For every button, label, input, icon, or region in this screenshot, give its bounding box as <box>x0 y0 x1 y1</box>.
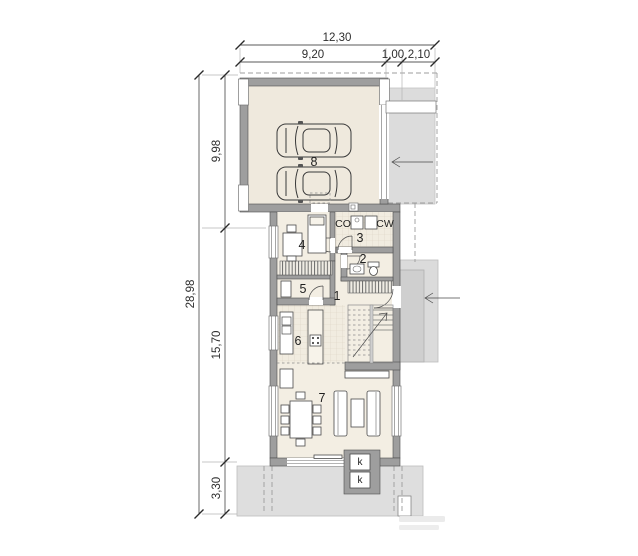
dim-top-total: 12,30 <box>323 32 352 44</box>
window <box>269 316 278 350</box>
dim-top-seg3: 2,10 <box>408 49 430 61</box>
entrance-arrow <box>425 293 460 303</box>
shelf <box>281 281 291 297</box>
room-label-3: 3 <box>357 231 364 245</box>
terrace <box>237 466 423 516</box>
room-label-5: 5 <box>300 282 307 296</box>
wardrobe <box>348 281 393 293</box>
entry-porch-inner <box>400 270 424 362</box>
garage-door <box>379 105 389 199</box>
chair <box>287 256 296 261</box>
room-label-6: 6 <box>295 334 302 348</box>
floor-plan-page: 8 <box>0 0 638 556</box>
co-label: CO <box>335 218 351 230</box>
room-label-7: 7 <box>319 391 326 405</box>
terrace-post <box>398 496 411 516</box>
garage-floor <box>244 82 384 208</box>
chair <box>281 405 289 413</box>
cooktop <box>310 335 321 346</box>
sliding-door <box>314 455 342 459</box>
chair <box>281 416 289 424</box>
garage-canopy <box>386 101 436 113</box>
wardrobe <box>280 261 332 275</box>
window <box>269 226 278 258</box>
fireplace: k k <box>344 450 380 494</box>
chair <box>313 416 321 424</box>
chair <box>313 427 321 435</box>
chair <box>313 405 321 413</box>
room-label-4: 4 <box>299 238 306 252</box>
dim-top-seg1: 9,20 <box>302 49 324 61</box>
room-label-1: 1 <box>334 289 341 303</box>
watermark <box>399 516 445 530</box>
room-label-8: 8 <box>311 155 318 169</box>
dim-left-seg3: 3,30 <box>211 477 223 499</box>
coffee-table <box>351 399 364 427</box>
pillow <box>310 217 324 225</box>
dim-top-seg2: 1,00 <box>382 49 404 61</box>
shelf-unit <box>280 369 293 388</box>
window <box>392 386 401 436</box>
cw-label: CW <box>376 218 394 230</box>
floor-plan: 8 <box>0 0 638 556</box>
dim-left-seg1: 9,98 <box>211 140 223 162</box>
sofa <box>367 391 380 436</box>
dim-left-seg2: 15,70 <box>211 331 223 360</box>
water-heater <box>365 216 377 229</box>
window <box>269 386 278 436</box>
chair <box>281 427 289 435</box>
vent-box <box>349 203 358 211</box>
dining-table <box>290 401 312 438</box>
sofa <box>334 391 347 436</box>
sideboard <box>345 371 389 378</box>
chair <box>287 225 296 232</box>
room-label-2: 2 <box>360 252 367 266</box>
chair <box>296 439 305 446</box>
dim-left-total: 28,98 <box>185 280 197 309</box>
chair <box>296 392 305 399</box>
